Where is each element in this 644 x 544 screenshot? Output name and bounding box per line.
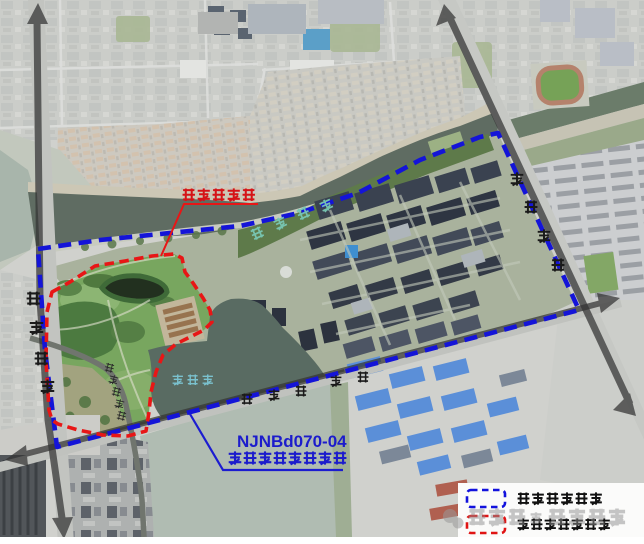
svg-text:NJNBd070-04: NJNBd070-04: [237, 432, 347, 451]
